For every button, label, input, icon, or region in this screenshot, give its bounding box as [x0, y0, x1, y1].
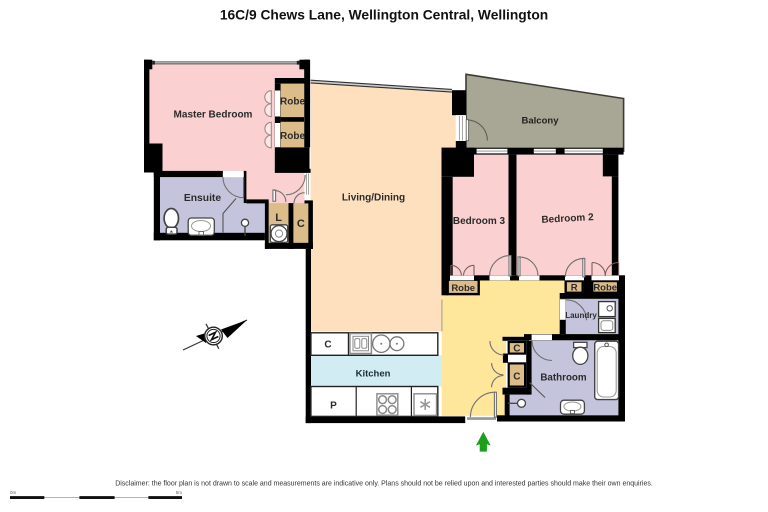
svg-text:Balcony: Balcony [522, 116, 560, 127]
svg-text:C: C [297, 218, 305, 230]
svg-text:C: C [513, 371, 520, 382]
svg-text:Robe: Robe [280, 131, 305, 142]
svg-text:Master Bedroom: Master Bedroom [174, 110, 253, 121]
svg-text:16C/9 Chews Lane, Wellington C: 16C/9 Chews Lane, Wellington Central, We… [220, 8, 548, 23]
svg-text:Disclaimer: the floor plan is: Disclaimer: the floor plan is not drawn … [115, 481, 653, 488]
svg-text:5m: 5m [176, 490, 183, 495]
svg-text:Laundry: Laundry [565, 311, 597, 320]
svg-text:Bathroom: Bathroom [540, 372, 587, 383]
svg-text:Robe: Robe [451, 283, 475, 294]
svg-text:Bedroom 3: Bedroom 3 [453, 216, 506, 227]
svg-text:Ensuite: Ensuite [184, 193, 221, 204]
svg-text:C: C [324, 340, 331, 351]
svg-text:R: R [571, 283, 578, 294]
svg-text:P: P [330, 400, 337, 411]
svg-text:Robe: Robe [593, 283, 617, 294]
svg-text:L: L [275, 212, 282, 224]
svg-text:Living/Dining: Living/Dining [342, 193, 405, 204]
svg-text:0m: 0m [10, 490, 17, 495]
svg-text:Robe: Robe [280, 96, 305, 107]
svg-text:C: C [513, 343, 520, 354]
svg-text:Kitchen: Kitchen [356, 368, 391, 379]
